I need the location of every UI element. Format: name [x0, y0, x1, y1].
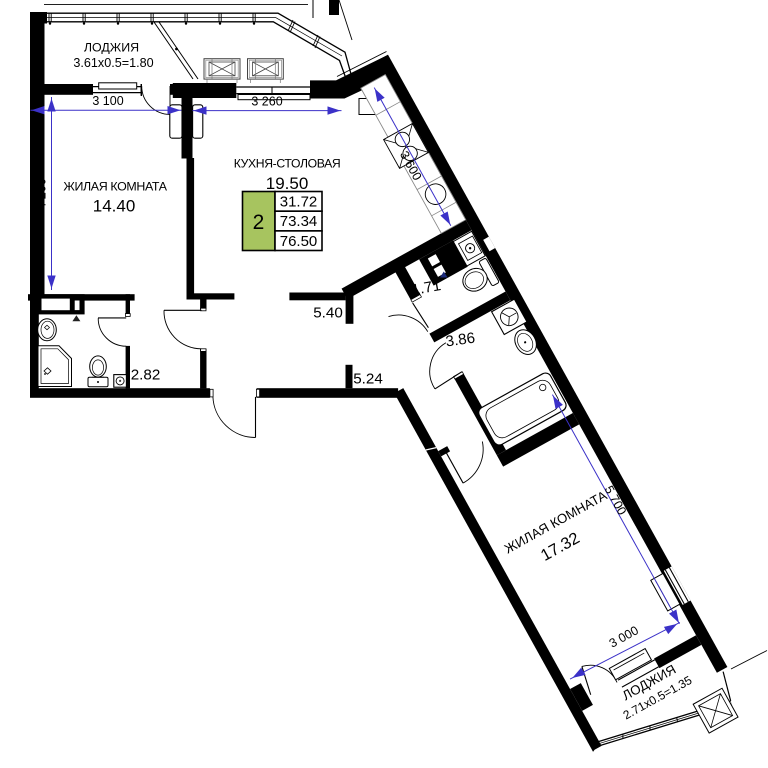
- svg-text:76.50: 76.50: [280, 233, 318, 250]
- svg-text:73.34: 73.34: [280, 213, 318, 230]
- svg-text:14.40: 14.40: [93, 197, 136, 216]
- svg-text:3 100: 3 100: [92, 94, 123, 108]
- svg-text:4 200: 4 200: [35, 178, 49, 209]
- svg-text:31.72: 31.72: [280, 194, 318, 211]
- svg-text:2: 2: [253, 211, 265, 234]
- svg-text:5.24: 5.24: [353, 371, 383, 388]
- svg-text:19.50: 19.50: [266, 174, 309, 193]
- svg-text:КУХНЯ-СТОЛОВАЯ: КУХНЯ-СТОЛОВАЯ: [234, 157, 341, 171]
- svg-text:5.40: 5.40: [313, 305, 343, 322]
- svg-text:3 260: 3 260: [251, 94, 282, 108]
- svg-text:2.82: 2.82: [131, 367, 161, 384]
- svg-text:ЖИЛАЯ КОМНАТА: ЖИЛАЯ КОМНАТА: [63, 180, 167, 194]
- svg-text:ЛОДЖИЯ: ЛОДЖИЯ: [84, 41, 139, 55]
- svg-text:3.61х0.5=1.80: 3.61х0.5=1.80: [73, 56, 153, 70]
